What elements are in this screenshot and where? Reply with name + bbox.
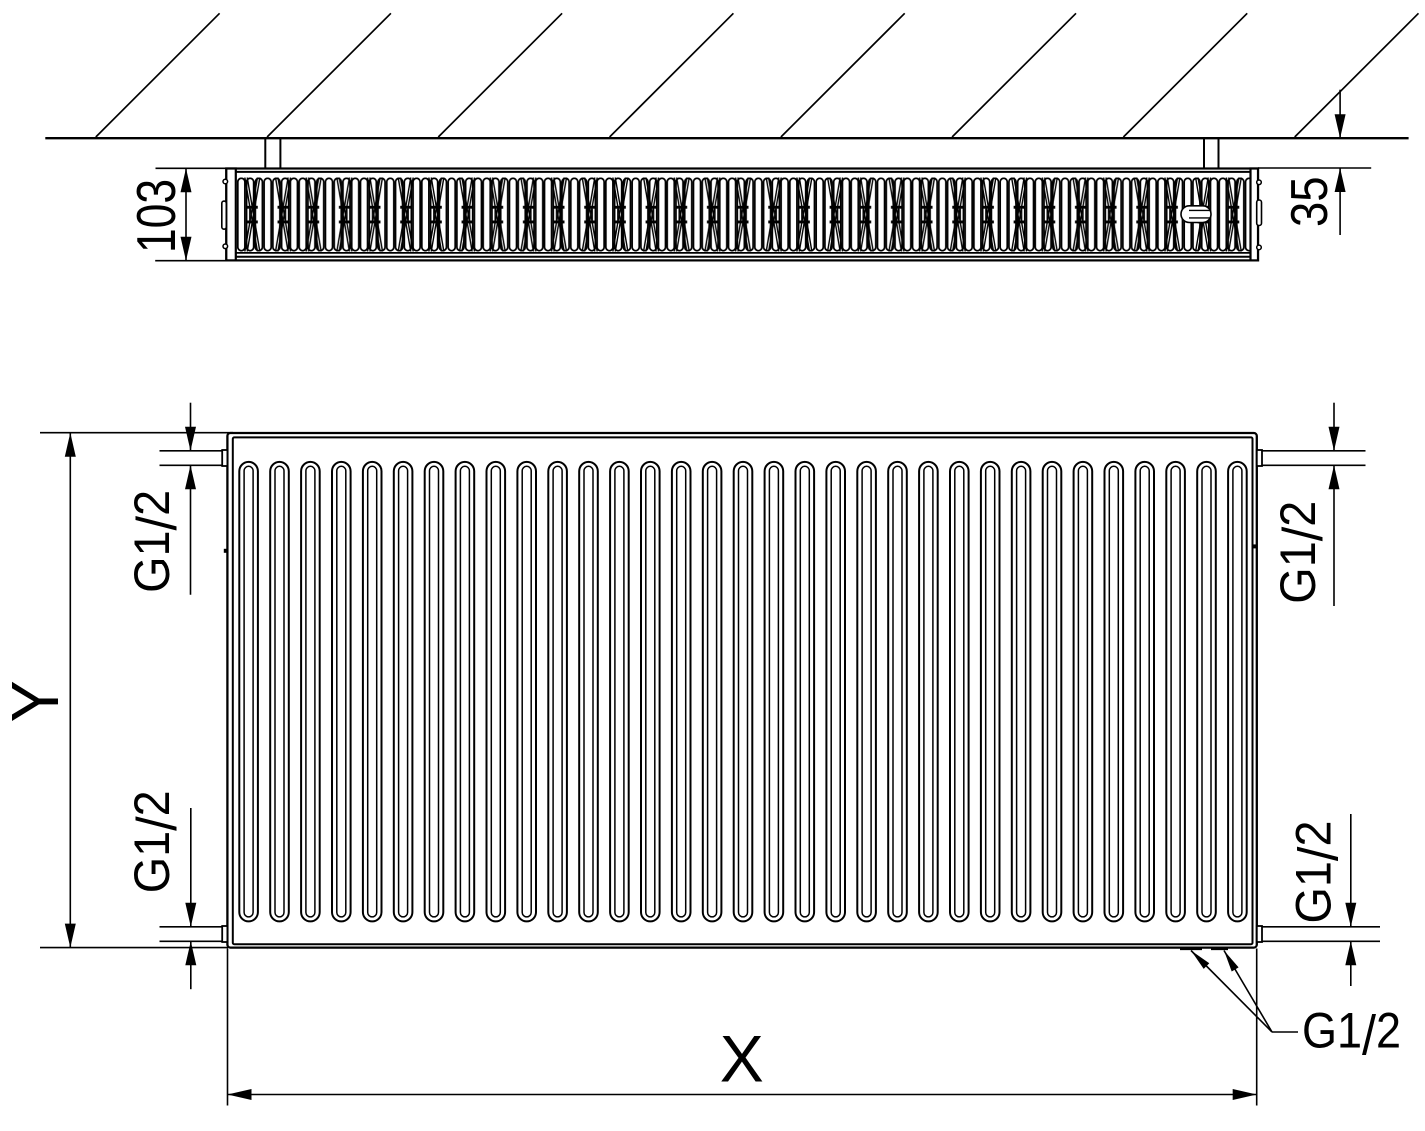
svg-text:G1/2: G1/2 — [1302, 1003, 1401, 1067]
svg-text:X: X — [720, 1022, 764, 1096]
svg-text:103: 103 — [125, 179, 187, 253]
svg-text:G1/2: G1/2 — [1270, 501, 1334, 604]
svg-text:G1/2: G1/2 — [124, 790, 188, 893]
svg-text:35: 35 — [1281, 177, 1339, 228]
svg-text:Y: Y — [0, 680, 73, 722]
svg-text:G1/2: G1/2 — [1286, 821, 1350, 924]
svg-text:G1/2: G1/2 — [124, 490, 188, 593]
